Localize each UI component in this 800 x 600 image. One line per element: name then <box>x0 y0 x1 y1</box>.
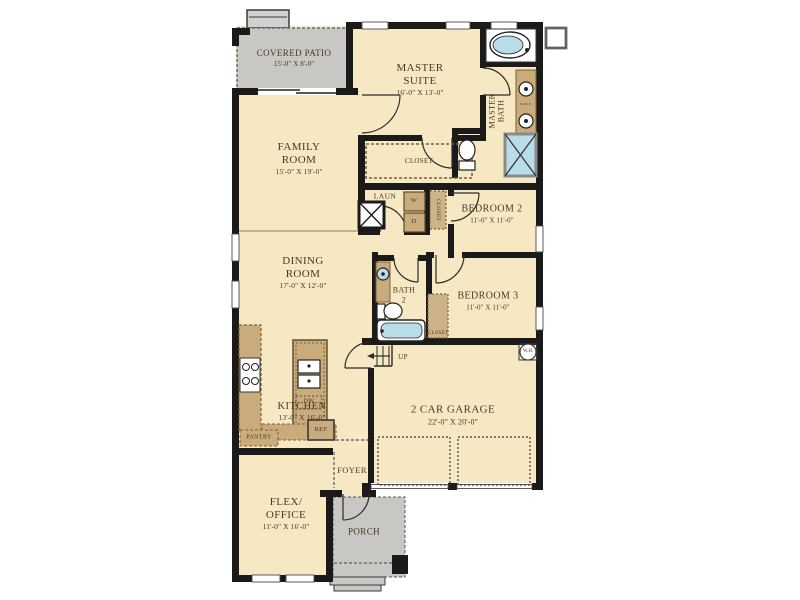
bedroom2-label: BEDROOM 2 11'-0" X 11'-0" <box>442 203 542 224</box>
flex-office-label: FLEX/ OFFICE 11'-0" X 16'-0" <box>258 496 314 532</box>
stairs-up-label: UP <box>398 353 408 361</box>
bedroom2-closet-label: CLOSET <box>435 199 441 221</box>
garage-label: 2 CAR GARAGE 22'-0" X 20'-0" <box>383 403 523 426</box>
master-suite-label: MASTER SUITE 16'-0" X 13'-0" <box>388 62 452 98</box>
dishwasher-label: DW <box>304 398 315 405</box>
dining-room-label: DINING ROOM 17'-0" X 12'-0" <box>274 255 332 291</box>
water-heater-label: W.H. <box>523 349 533 355</box>
kitchen-label: KITCHEN 13'-0" X 16'-0" <box>252 401 352 423</box>
cooktop-icon <box>240 358 260 392</box>
bedroom3-closet-label: CLOSET <box>428 331 448 337</box>
refrigerator-label: REF <box>314 426 327 434</box>
dryer-label: D <box>411 218 416 226</box>
family-room-label: FAMILY ROOM 15'-0" X 19'-0" <box>270 141 328 177</box>
sliding-door <box>258 88 336 95</box>
porch-area <box>330 497 408 591</box>
master-bath-label: MASTER BATH <box>488 88 507 134</box>
chimney <box>247 10 289 28</box>
toilet-icon <box>459 161 475 170</box>
washer-label: W <box>411 197 418 205</box>
porch-label: PORCH <box>348 527 380 538</box>
covered-patio-label: COVERED PATIO 15'-0" X 8'-0" <box>254 48 334 68</box>
master-closet-label: CLOSET <box>405 157 433 165</box>
column-detail <box>546 28 566 48</box>
floor-plan: COVERED PATIO 15'-0" X 8'-0" MASTER SUIT… <box>0 0 800 600</box>
laundry-label: LAUN <box>374 193 396 202</box>
foyer-label: FOYER <box>337 465 367 475</box>
pantry-label: PANTRY <box>246 434 272 441</box>
porch-steps <box>330 577 385 585</box>
bedroom3-label: BEDROOM 3 11'-0" X 11'-0" <box>438 290 538 311</box>
porch-post <box>392 555 408 574</box>
bath2-label: BATH 2 <box>393 286 416 307</box>
